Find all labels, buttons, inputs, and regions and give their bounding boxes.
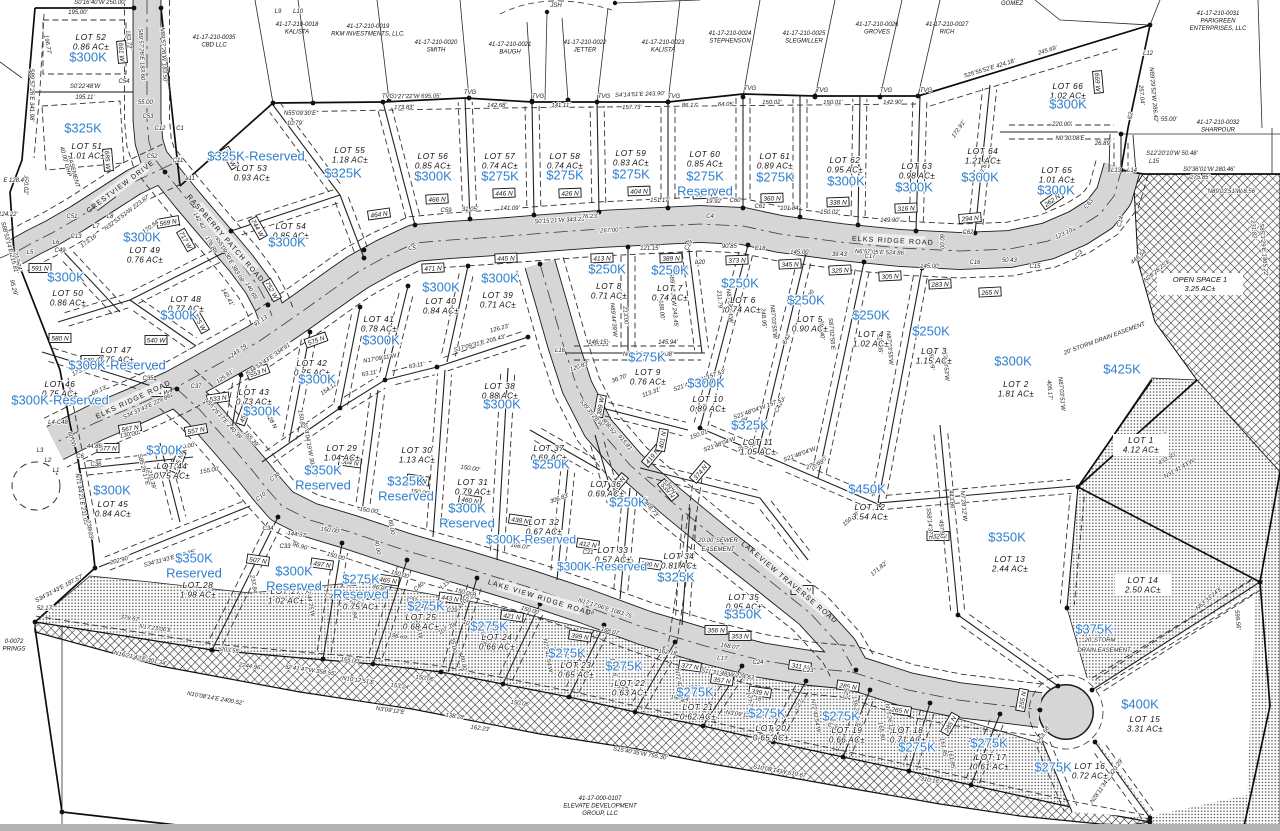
svg-text:TVG: TVG [382, 94, 395, 100]
svg-text:S0’36’01’W 280.46’: S0’36’01’W 280.46’ [1183, 167, 1235, 173]
svg-text:$250K: $250K [588, 262, 626, 277]
svg-text:C35: C35 [142, 376, 154, 382]
svg-text:$275K: $275K [407, 599, 445, 614]
svg-text:LOT 250.68 AC±: LOT 250.68 AC± [403, 613, 439, 631]
svg-text:C17: C17 [864, 254, 876, 260]
svg-text:C16: C16 [969, 260, 981, 266]
svg-text:445 N: 445 N [497, 255, 515, 263]
svg-text:JSH: JSH [549, 3, 562, 9]
svg-text:$300K: $300K [69, 50, 107, 65]
svg-text:$300K: $300K [895, 180, 933, 195]
svg-text:446 N: 446 N [495, 190, 513, 198]
svg-text:$275K: $275K [1034, 760, 1072, 775]
svg-text:C12: C12 [154, 126, 166, 132]
svg-text:150.02’: 150.02’ [820, 210, 840, 216]
svg-text:41-17-210-0024STEPHENSON: 41-17-210-0024STEPHENSON [709, 31, 752, 44]
svg-text:345 N: 345 N [781, 261, 799, 269]
svg-text:C53: C53 [142, 114, 154, 120]
svg-text:L15: L15 [1149, 159, 1160, 165]
svg-text:150.01’: 150.01’ [823, 100, 843, 106]
svg-text:LOT 511.01 AC±: LOT 511.01 AC± [69, 142, 105, 160]
svg-text:$275K: $275K [546, 168, 584, 183]
svg-text:LOT 160.72 AC±: LOT 160.72 AC± [1072, 762, 1108, 780]
svg-text:$300K: $300K [123, 230, 161, 245]
svg-text:C33: C33 [279, 544, 291, 550]
svg-text:N0’30’08’E: N0’30’08’E [1055, 136, 1085, 142]
svg-text:580 N: 580 N [51, 336, 69, 343]
svg-text:$300K: $300K [414, 169, 452, 184]
svg-text:LOT 590.83 AC±: LOT 590.83 AC± [613, 149, 649, 167]
svg-text:TVG: TVG [920, 88, 933, 94]
svg-text:C11: C11 [173, 158, 184, 164]
svg-text:C34: C34 [262, 526, 274, 532]
svg-text:C1: C1 [176, 126, 184, 132]
svg-text:$300K: $300K [243, 404, 281, 419]
svg-text:101.84’: 101.84’ [780, 206, 800, 212]
svg-text:TVG: TVG [598, 94, 611, 100]
svg-text:275.85’: 275.85’ [1189, 175, 1210, 181]
svg-text:31.05’: 31.05’ [462, 207, 479, 213]
svg-text:$300K: $300K [93, 483, 131, 498]
svg-text:$300K: $300K [827, 174, 865, 189]
svg-text:L8: L8 [107, 214, 114, 220]
svg-text:$300K: $300K [1049, 97, 1087, 112]
svg-text:404 N: 404 N [630, 188, 648, 196]
svg-text:$275K: $275K [898, 740, 936, 755]
svg-text:121.15’: 121.15’ [640, 246, 660, 252]
svg-text:20.00’ SEWER: 20.00’ SEWER [697, 538, 738, 544]
svg-text:L13: L13 [1111, 168, 1122, 174]
svg-text:142.68’: 142.68’ [487, 103, 507, 109]
svg-text:E 128.47’: E 128.47’ [3, 178, 29, 184]
svg-text:220.00’: 220.00’ [1051, 122, 1072, 128]
svg-text:124.22’: 124.22’ [0, 212, 19, 218]
svg-text:LOT 301.13 AC±: LOT 301.13 AC± [399, 446, 435, 464]
svg-text:N55’09’30’E: N55’09’30’E [284, 111, 317, 117]
svg-text:C5: C5 [408, 246, 416, 252]
svg-text:TVG: TVG [532, 94, 545, 100]
svg-text:LOT 240.66 AC±: LOT 240.66 AC± [479, 633, 515, 651]
svg-text:C24: C24 [752, 660, 764, 666]
svg-text:$350K: $350K [988, 530, 1026, 545]
svg-text:44.86’: 44.86’ [87, 444, 104, 450]
svg-text:TVG: TVG [816, 88, 829, 94]
svg-text:L4-C48: L4-C48 [48, 420, 68, 426]
svg-text:$250K: $250K [852, 308, 890, 323]
svg-text:$300K: $300K [687, 376, 725, 391]
svg-text:LOT 14.12 AC±: LOT 14.12 AC± [1123, 436, 1159, 454]
svg-text:$250K: $250K [532, 457, 570, 472]
svg-text:LOT 630.98 AC±: LOT 630.98 AC± [899, 162, 935, 180]
svg-text:TVG: TVG [668, 94, 681, 100]
svg-text:19.92’: 19.92’ [706, 199, 723, 205]
svg-text:145.94’: 145.94’ [658, 340, 678, 346]
svg-text:LOT 490.76 AC±: LOT 490.76 AC± [127, 246, 163, 264]
svg-text:$450K: $450K [848, 482, 886, 497]
svg-text:145.00’: 145.00’ [790, 250, 810, 256]
svg-text:L14: L14 [1127, 168, 1138, 174]
svg-text:C18: C18 [754, 246, 766, 252]
svg-text:540 W: 540 W [147, 338, 167, 345]
svg-text:L6: L6 [53, 240, 60, 246]
svg-text:50.43’: 50.43’ [1002, 258, 1019, 264]
svg-text:LOT 551.18 AC±: LOT 551.18 AC± [332, 146, 368, 164]
svg-text:353 N: 353 N [731, 634, 749, 641]
svg-text:$300K: $300K [146, 443, 184, 458]
svg-text:$250K: $250K [651, 263, 689, 278]
svg-text:86.17’: 86.17’ [682, 103, 699, 109]
svg-text:$300K: $300K [47, 270, 85, 285]
svg-text:LOT 111.05 AC±: LOT 111.05 AC± [740, 438, 776, 456]
svg-text:$300K-Reserved: $300K-Reserved [557, 559, 647, 573]
svg-text:20’ STORM: 20’ STORM [1084, 638, 1116, 644]
svg-text:LOT 291.04 AC±: LOT 291.04 AC± [324, 444, 360, 462]
svg-text:LOT 560.85 AC±: LOT 560.85 AC± [415, 152, 451, 170]
svg-text:C29: C29 [446, 608, 458, 614]
svg-text:$275K: $275K [605, 659, 643, 674]
svg-text:LOT 123.54 AC±: LOT 123.54 AC± [852, 503, 888, 521]
svg-text:$325K-Reserved: $325K-Reserved [207, 149, 305, 164]
svg-text:LOT 153.31 AC±: LOT 153.31 AC± [1127, 715, 1163, 733]
svg-text:GOMEZ: GOMEZ [1001, 1, 1023, 7]
svg-text:151.17’: 151.17’ [650, 198, 670, 204]
svg-text:EASEMENT: EASEMENT [701, 547, 735, 553]
svg-text:$300K-Reserved: $300K-Reserved [68, 358, 166, 373]
svg-text:LOT 410.78 AC±: LOT 410.78 AC± [361, 315, 397, 333]
svg-text:TVG: TVG [880, 88, 893, 94]
svg-text:195.00’: 195.00’ [68, 10, 88, 16]
svg-text:DRAIN EASEMENT: DRAIN EASEMENT [1077, 648, 1132, 654]
svg-text:LOT 170.61 AC±: LOT 170.61 AC± [973, 753, 1009, 771]
svg-text:$275K: $275K [756, 170, 794, 185]
svg-text:LOT 500.86 AC±: LOT 500.86 AC± [50, 289, 86, 307]
svg-text:$300K: $300K [961, 170, 999, 185]
svg-text:$275K: $275K [970, 736, 1008, 751]
svg-text:173.83’: 173.83’ [394, 105, 414, 111]
svg-text:LOT 31.15 AC±: LOT 31.15 AC± [916, 347, 952, 365]
svg-text:$275K: $275K [628, 350, 666, 365]
svg-text:$275K: $275K [481, 169, 519, 184]
svg-text:L16: L16 [555, 348, 566, 354]
svg-text:L12: L12 [1143, 51, 1154, 57]
svg-text:LOT 41.02 AC±: LOT 41.02 AC± [853, 330, 889, 348]
svg-text:LOT 390.71 AC±: LOT 390.71 AC± [480, 291, 516, 309]
svg-text:305 N: 305 N [881, 273, 899, 281]
svg-text:$300K: $300K [298, 372, 336, 387]
svg-text:356 N: 356 N [707, 628, 725, 635]
svg-text:LOT 142.50 AC±: LOT 142.50 AC± [1124, 576, 1161, 594]
svg-text:60.00’: 60.00’ [938, 234, 944, 251]
svg-text:C62: C62 [962, 230, 974, 236]
svg-text:195.11’: 195.11’ [75, 95, 95, 101]
svg-text:C6: C6 [76, 454, 84, 460]
svg-text:C54: C54 [118, 79, 130, 85]
svg-text:157.73’: 157.73’ [622, 105, 642, 111]
svg-text:L2: L2 [45, 458, 52, 464]
svg-text:L20: L20 [695, 260, 706, 266]
svg-text:76.23’: 76.23’ [582, 214, 599, 221]
svg-text:360 N: 360 N [763, 195, 781, 203]
svg-text:S0’16’40’W 250.00’: S0’16’40’W 250.00’ [74, 0, 126, 6]
svg-text:LOT 132.44 AC±: LOT 132.44 AC± [991, 555, 1028, 573]
svg-text:C49: C49 [54, 248, 66, 254]
svg-text:LOT 620.95 AC±: LOT 620.95 AC± [827, 156, 863, 174]
svg-text:$300K: $300K [481, 271, 519, 286]
svg-text:$250K: $250K [721, 276, 759, 291]
svg-text:L9: L9 [275, 9, 282, 15]
svg-text:141.09’: 141.09’ [500, 206, 520, 212]
svg-text:$300K: $300K [994, 354, 1032, 369]
svg-text:C59: C59 [440, 208, 452, 214]
svg-text:39.43’: 39.43’ [832, 252, 849, 258]
svg-text:L3: L3 [37, 448, 44, 454]
svg-text:10.79’: 10.79’ [287, 121, 304, 127]
svg-text:$275K: $275K [676, 685, 714, 700]
svg-text:$400K: $400K [1121, 697, 1159, 712]
svg-text:$300K: $300K [422, 280, 460, 295]
svg-text:LOT 70.74 AC±: LOT 70.74 AC± [652, 284, 688, 302]
svg-text:C37: C37 [190, 384, 202, 390]
svg-text:$425K: $425K [1103, 362, 1141, 377]
svg-text:LOT 600.85 AC±: LOT 600.85 AC± [687, 150, 723, 168]
svg-text:41-17-210-0032SHARPOUR: 41-17-210-0032SHARPOUR [1197, 120, 1240, 133]
svg-text:LOT 21.81 AC±: LOT 21.81 AC± [998, 380, 1034, 398]
svg-text:LOT 230.65 AC±: LOT 230.65 AC± [558, 661, 594, 679]
svg-text:L1: L1 [53, 468, 60, 474]
svg-text:LOT 90.76 AC±: LOT 90.76 AC± [630, 368, 666, 386]
svg-text:$375K: $375K [1075, 622, 1113, 637]
svg-text:LOT 190.66 AC±: LOT 190.66 AC± [829, 726, 865, 744]
svg-text:S0’27’22’W 695.05’: S0’27’22’W 695.05’ [389, 94, 441, 101]
svg-text:55.00’: 55.00’ [1161, 117, 1178, 123]
svg-text:C23: C23 [802, 668, 814, 674]
svg-text:LOT 340.81 AC±: LOT 340.81 AC± [661, 552, 697, 570]
svg-text:TVG: TVG [744, 86, 757, 92]
svg-text:L5: L5 [27, 250, 34, 256]
svg-text:141.11’: 141.11’ [551, 103, 571, 109]
svg-text:S89’57’26’E 341.98’: S89’57’26’E 341.98’ [28, 68, 34, 122]
svg-text:LOT 530.93 AC±: LOT 530.93 AC± [234, 164, 270, 182]
svg-text:146.15’: 146.15’ [588, 340, 608, 346]
svg-text:$250K: $250K [609, 495, 647, 510]
svg-text:$250K: $250K [787, 293, 825, 308]
svg-text:$300K-Reserved: $300K-Reserved [11, 393, 109, 408]
svg-text:$300K: $300K [483, 397, 521, 412]
svg-text:145.00’: 145.00’ [920, 264, 940, 270]
svg-text:338 N: 338 N [829, 199, 847, 207]
svg-text:426 N: 426 N [561, 190, 579, 198]
svg-text:41-17-210-0025SLEGMILLER: 41-17-210-0025SLEGMILLER [783, 31, 826, 44]
svg-text:$300K: $300K [160, 308, 198, 323]
svg-text:267.00’: 267.00’ [599, 227, 621, 234]
svg-text:C21: C21 [582, 550, 593, 556]
svg-text:LOT 220.63 AC±: LOT 220.63 AC± [612, 679, 648, 697]
svg-text:$275K: $275K [470, 619, 508, 634]
svg-text:LOT 651.01 AC±: LOT 651.01 AC± [1039, 166, 1075, 184]
svg-text:$325K: $325K [731, 418, 769, 433]
svg-text:$275K: $275K [612, 167, 650, 182]
svg-text:S0’22’48’W: S0’22’48’W [70, 84, 102, 90]
svg-text:64.05’: 64.05’ [718, 102, 735, 108]
svg-text:265 N: 265 N [980, 289, 999, 297]
svg-text:LOT 210.62 AC±: LOT 210.62 AC± [680, 703, 716, 721]
svg-text:471 N: 471 N [424, 265, 442, 273]
svg-text:$350K: $350K [724, 607, 762, 622]
svg-text:LOT 50.90 AC±: LOT 50.90 AC± [792, 315, 828, 333]
svg-text:LOT 520.86 AC±: LOT 520.86 AC± [73, 33, 109, 51]
svg-text:LOT 80.71 AC±: LOT 80.71 AC± [591, 282, 627, 300]
svg-text:$300K: $300K [1037, 183, 1075, 198]
svg-text:LOT 440.75 AC±: LOT 440.75 AC± [154, 462, 190, 480]
svg-text:LOT 60.74 AC±: LOT 60.74 AC± [725, 296, 761, 314]
svg-text:$275K: $275K [822, 709, 860, 724]
svg-text:283 N: 283 N [930, 281, 949, 289]
svg-text:LOT 400.84 AC±: LOT 400.84 AC± [423, 297, 459, 315]
svg-text:142.90’: 142.90’ [883, 100, 903, 106]
svg-text:$300K-Reserved: $300K-Reserved [486, 532, 576, 546]
svg-text:C52: C52 [146, 154, 158, 160]
svg-text:$275K: $275K [748, 706, 786, 721]
svg-text:C60: C60 [729, 198, 741, 204]
svg-text:$325K: $325K [324, 166, 362, 181]
svg-text:LOT 641.21 AC±: LOT 641.21 AC± [965, 147, 1001, 165]
svg-text:90.85’: 90.85’ [722, 244, 739, 250]
svg-text:$325K: $325K [64, 121, 102, 136]
svg-text:L10: L10 [293, 9, 304, 15]
svg-text:C36: C36 [90, 462, 102, 468]
svg-text:LOT 310.79 AC±: LOT 310.79 AC± [455, 478, 491, 496]
svg-text:0-0072PRINGS: 0-0072PRINGS [2, 639, 25, 652]
svg-text:LOT 281.98 AC±: LOT 281.98 AC± [180, 581, 216, 599]
svg-text:S12’20’10’W 50.48’: S12’20’10’W 50.48’ [1146, 151, 1198, 157]
svg-text:$275K: $275K [548, 646, 586, 661]
svg-text:$300K: $300K [268, 235, 306, 250]
svg-text:LOT 610.89 AC±: LOT 610.89 AC± [757, 152, 793, 170]
svg-text:LOT 450.84 AC±: LOT 450.84 AC± [95, 500, 131, 518]
svg-text:$250K: $250K [912, 324, 950, 339]
svg-text:149.90’: 149.90’ [880, 218, 900, 224]
svg-text:150.02’: 150.02’ [762, 100, 782, 106]
svg-text:C61: C61 [754, 204, 765, 210]
svg-text:$300K: $300K [362, 333, 400, 348]
svg-text:373 N: 373 N [728, 257, 746, 265]
svg-text:L11: L11 [185, 176, 195, 182]
svg-text:55.00’: 55.00’ [138, 100, 155, 106]
svg-text:LOT 100.89 AC±: LOT 100.89 AC± [690, 395, 726, 413]
svg-text:C13: C13 [70, 234, 82, 240]
svg-text:325 N: 325 N [831, 267, 849, 275]
svg-text:L7: L7 [93, 224, 100, 230]
svg-text:$325K: $325K [657, 570, 695, 585]
svg-text:52.17’: 52.17’ [37, 606, 54, 612]
svg-text:LOT 570.74 AC±: LOT 570.74 AC± [482, 152, 518, 170]
svg-text:C4: C4 [706, 214, 714, 220]
svg-text:TVG: TVG [464, 90, 477, 96]
svg-text:466 N: 466 N [428, 196, 446, 204]
svg-text:316 N: 316 N [897, 205, 915, 213]
svg-text:N89’03’51’W 8.56’: N89’03’51’W 8.56’ [1208, 189, 1257, 195]
svg-text:C15: C15 [1029, 264, 1041, 270]
svg-text:LOT 200.65 AC±: LOT 200.65 AC± [753, 724, 789, 742]
svg-text:26.89’: 26.89’ [1094, 141, 1112, 147]
svg-text:C51: C51 [66, 214, 77, 220]
